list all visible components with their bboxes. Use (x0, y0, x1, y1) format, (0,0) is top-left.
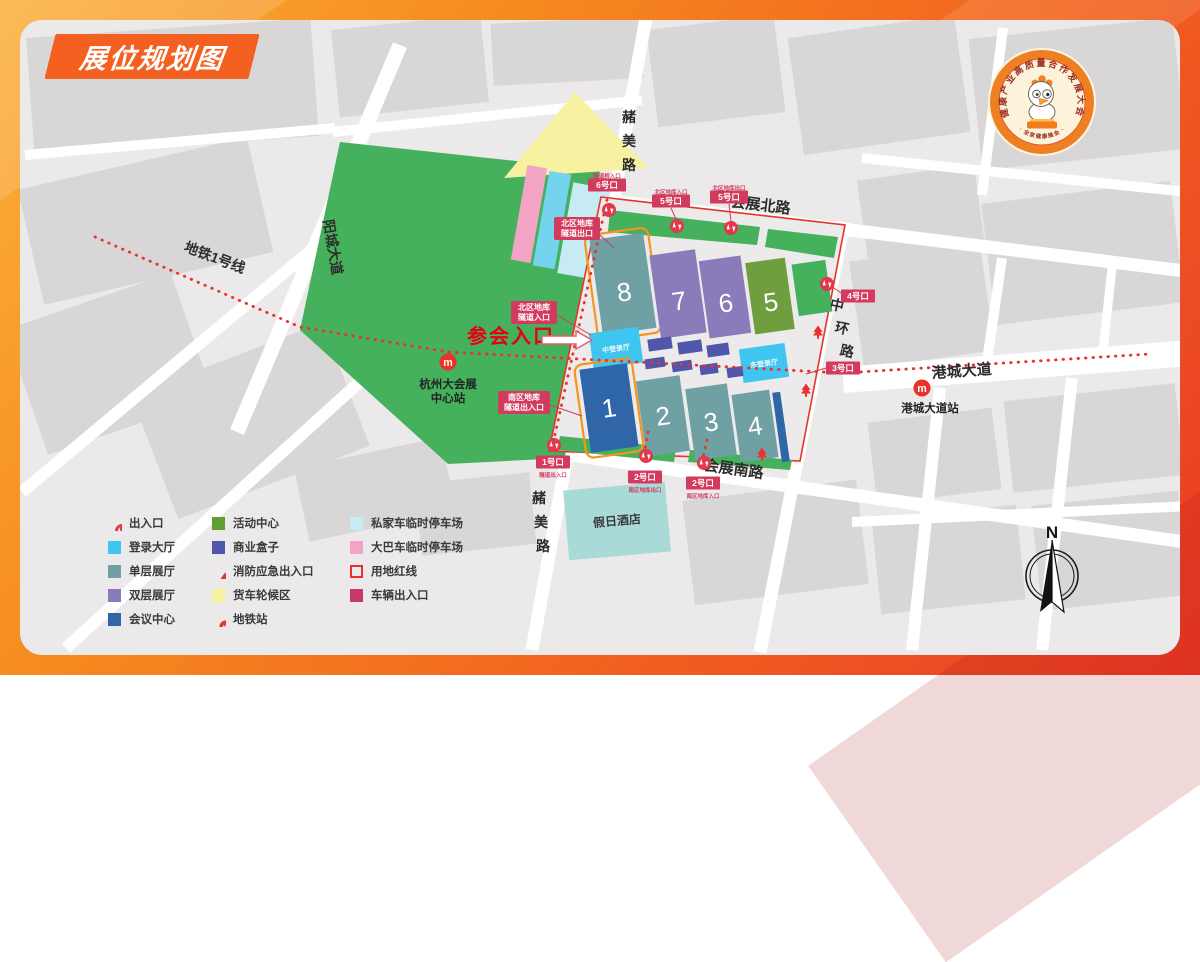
gate5a-label: 5号口 (660, 196, 682, 206)
city-block (490, 20, 643, 86)
legend-column-2: 活动中心 商业盒子 消防应急出入口 货车轮候区 地铁站 (212, 516, 334, 626)
title-ribbon: 展位规划图 (44, 34, 259, 79)
legend-item-single-hall: 单层展厅 (108, 564, 196, 578)
gate2a-label: 2号口 (634, 472, 656, 482)
color-swatch (212, 517, 225, 530)
legend-item-truck-area: 货车轮候区 (212, 588, 334, 602)
city-block (1004, 383, 1180, 492)
color-swatch (350, 517, 363, 530)
gate2b-label: 2号口 (692, 478, 714, 488)
road-label-zhonghuan-char3: 路 (839, 342, 857, 361)
legend-label: 消防应急出入口 (233, 563, 314, 579)
north-garage-exit-line2: 隧道出口 (561, 228, 593, 238)
legend-label: 出入口 (129, 515, 164, 531)
legend-item-commercial-box: 商业盒子 (212, 540, 334, 554)
page-title: 展位规划图 (77, 37, 227, 76)
legend-label: 单层展厅 (129, 563, 175, 579)
legend-item-entrance: 出入口 (108, 516, 196, 530)
fire-icon (212, 565, 225, 578)
legend-item-double-hall: 双层展厅 (108, 588, 196, 602)
color-swatch (350, 541, 363, 554)
gate4-label: 4号口 (847, 291, 869, 301)
conference-logo: 健康产业高质量合作发展大会 · 全家健康展会 · (986, 46, 1098, 158)
legend-column-1: 出入口 登录大厅 单层展厅 双层展厅 会议中心 (108, 516, 196, 626)
color-swatch (108, 541, 121, 554)
city-block (20, 137, 273, 305)
legend-item-vehicle-entrance: 车辆出入口 (350, 588, 490, 602)
gate-icon (602, 203, 616, 217)
legend-label: 双层展厅 (129, 587, 175, 603)
legend-label: 车辆出入口 (371, 587, 429, 603)
gate-icon (670, 219, 684, 233)
legend-item-metro-station: 地铁站 (212, 612, 334, 626)
gate6-label: 6号口 (596, 180, 618, 190)
north-garage-entry-line2: 隧道入口 (518, 312, 550, 322)
legend-label: 商业盒子 (233, 539, 279, 555)
legend-item-fire-exit: 消防应急出入口 (212, 564, 334, 578)
south-garage-line1: 南区地库 (508, 392, 540, 402)
legend-label: 货车轮候区 (233, 587, 291, 603)
compass-north-label: N (1046, 523, 1058, 542)
legend-label: 会议中心 (129, 611, 175, 627)
legend-item-car-parking: 私家车临时停车场 (350, 516, 490, 530)
legend-label: 私家车临时停车场 (371, 515, 463, 531)
gate-icon (547, 438, 561, 452)
gate-icon (697, 456, 711, 470)
gate-icon (108, 517, 121, 530)
logo-badge: 健康产业高质量合作发展大会 · 全家健康展会 · (986, 46, 1098, 158)
legend-item-login-hall: 登录大厅 (108, 540, 196, 554)
north-garage-entry-line1: 北区地库 (518, 302, 550, 312)
legend-label: 登录大厅 (129, 539, 175, 555)
legend: 出入口 登录大厅 单层展厅 双层展厅 会议中心 活动中心 商业盒子 (108, 516, 490, 626)
red-outline-icon (350, 565, 363, 578)
legend-label: 活动中心 (233, 515, 279, 531)
gate-icon (639, 449, 653, 463)
color-swatch (108, 613, 121, 626)
gate5b-label: 5号口 (718, 192, 740, 202)
city-block (331, 20, 489, 118)
gate-icon (820, 277, 834, 291)
color-swatch (350, 589, 363, 602)
road-label-zhonghuan-char2: 环 (834, 319, 851, 338)
metro-station-icon (913, 379, 930, 396)
road-label-zhemei-south-char2: 美 (534, 514, 549, 530)
road-label-zhemei-north-char1: 赭 (622, 109, 636, 125)
legend-column-3: 私家车临时停车场 大巴车临时停车场 用地红线 车辆出入口 (350, 516, 490, 626)
road-label-zhemei-south-char1: 赭 (532, 490, 546, 506)
metro-icon (212, 613, 225, 626)
station-center-line2: 中心站 (431, 391, 466, 405)
city-block (788, 20, 971, 155)
south-garage-line2: 隧道出入口 (504, 402, 544, 412)
gate2a-note: 南区地库出口 (628, 486, 661, 494)
legend-label: 用地红线 (371, 563, 417, 579)
legend-item-bus-parking: 大巴车临时停车场 (350, 540, 490, 554)
north-garage-exit-line1: 北区地库 (561, 218, 593, 228)
legend-label: 地铁站 (233, 611, 268, 627)
gate1-label: 1号口 (542, 457, 564, 467)
legend-item-activity-center: 活动中心 (212, 516, 334, 530)
road-label-zhemei-north-char3: 路 (622, 157, 637, 173)
legend-label: 大巴车临时停车场 (371, 539, 463, 555)
login-hall-east: 东登录厅 (739, 343, 789, 383)
gate3-label: 3号口 (832, 363, 854, 373)
road-label-zhemei-north-char2: 美 (622, 133, 637, 149)
metro-station-icon (439, 353, 456, 370)
gate2b-note: 南区地库入口 (686, 492, 719, 500)
station-center-line1: 杭州大会展 (419, 377, 477, 391)
color-swatch (108, 565, 121, 578)
gate1-note: 隧道出入口 (539, 471, 567, 479)
gate-icon (724, 221, 738, 235)
color-swatch (212, 589, 225, 602)
city-block (647, 20, 786, 127)
legend-item-red-line: 用地红线 (350, 564, 490, 578)
color-swatch (212, 541, 225, 554)
legend-item-conference-center: 会议中心 (108, 612, 196, 626)
color-swatch (108, 589, 121, 602)
city-block (849, 243, 995, 368)
station-gangcheng-label: 港城大道站 (901, 401, 959, 415)
road-label-zhemei-south-char3: 路 (536, 538, 551, 554)
